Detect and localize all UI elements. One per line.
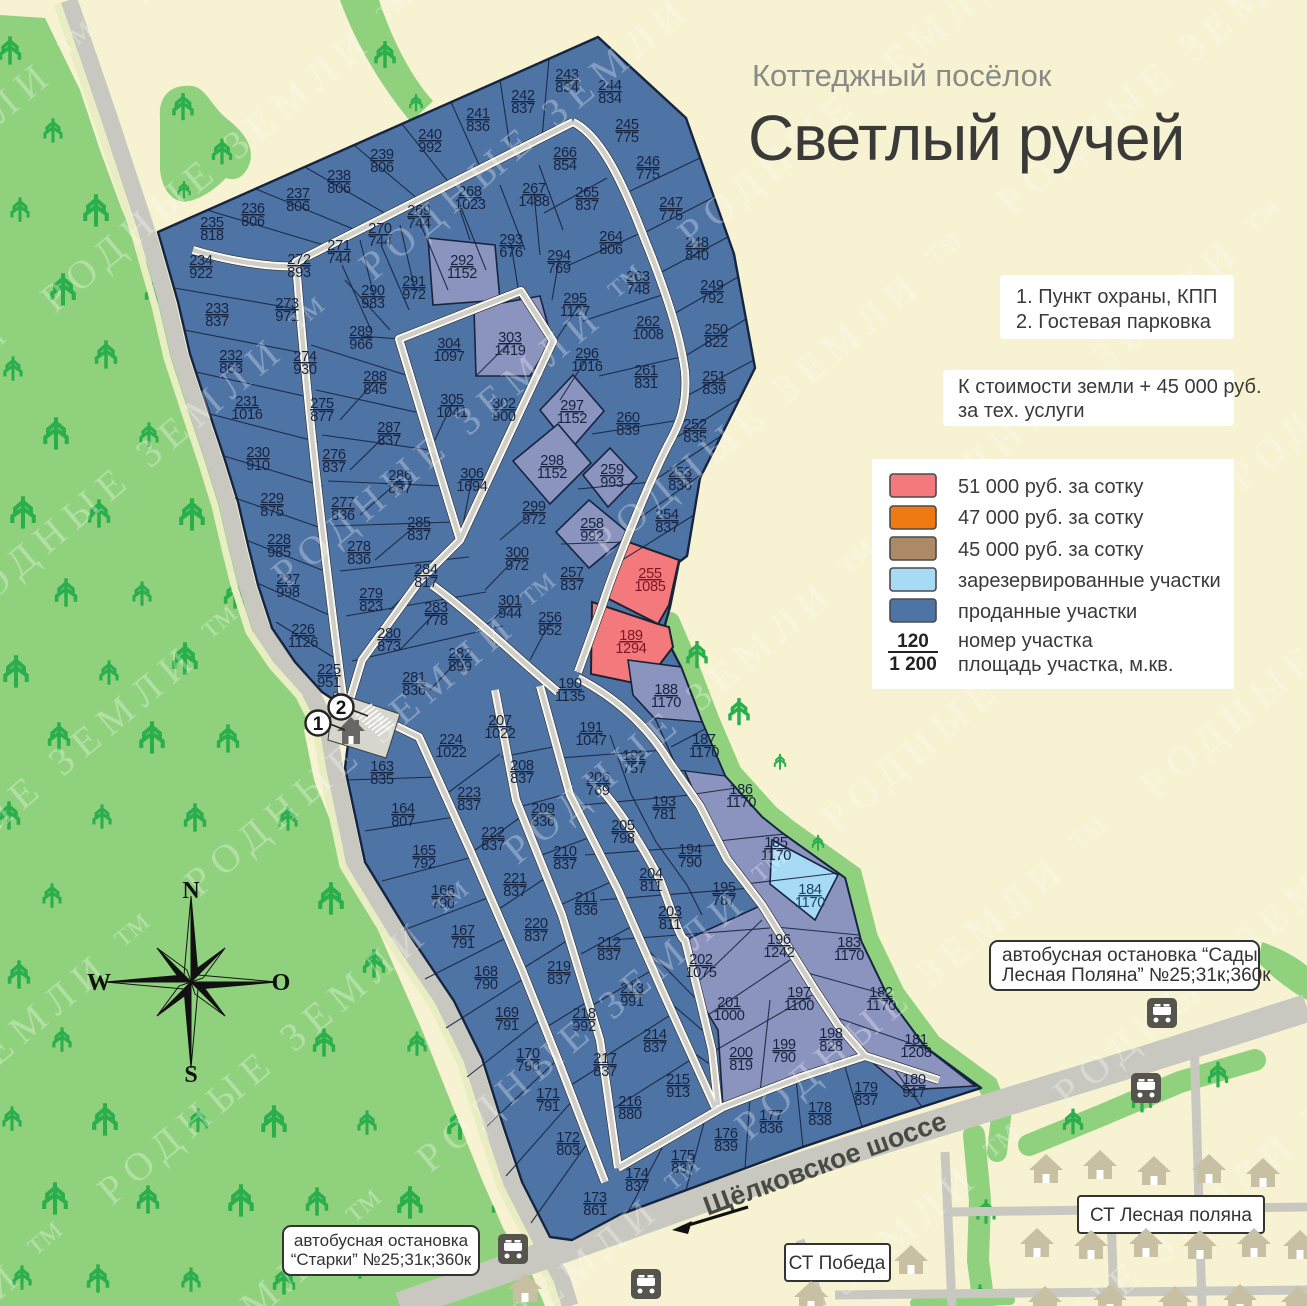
svg-text:972: 972 [402,287,426,303]
svg-text:837: 837 [457,798,481,814]
svg-text:910: 910 [246,458,270,474]
svg-text:1097: 1097 [433,349,464,365]
svg-text:1242: 1242 [763,945,794,961]
svg-text:номер участка: номер участка [958,630,1094,652]
svg-text:839: 839 [714,1139,738,1155]
svg-text:1170: 1170 [834,948,864,964]
svg-text:Коттеджный посёлок: Коттеджный посёлок [752,58,1052,93]
svg-text:769: 769 [547,261,571,277]
svg-text:837: 837 [854,1093,878,1109]
svg-text:798: 798 [611,831,635,847]
svg-text:площадь участка, м.кв.: площадь участка, м.кв. [958,654,1173,676]
svg-text:817: 817 [414,575,438,591]
svg-text:за тех. услуги: за тех. услуги [958,400,1085,422]
svg-text:837: 837 [575,198,599,214]
svg-text:835: 835 [370,772,394,788]
svg-text:819: 819 [729,1058,753,1074]
svg-text:1022: 1022 [435,745,466,761]
svg-text:792: 792 [412,856,436,872]
svg-text:51 000 руб. за сотку: 51 000 руб. за сотку [958,476,1143,498]
svg-text:837: 837 [510,771,534,787]
svg-text:873: 873 [377,639,401,655]
svg-text:807: 807 [391,814,415,830]
svg-text:930: 930 [293,362,317,378]
svg-text:790: 790 [474,977,498,993]
svg-text:983: 983 [361,296,385,312]
svg-text:837: 837 [597,948,621,964]
svg-text:822: 822 [704,335,728,351]
svg-text:837: 837 [322,460,346,476]
svg-text:744: 744 [327,251,351,267]
svg-text:1016: 1016 [571,359,602,375]
svg-text:811: 811 [640,879,663,895]
svg-text:1208: 1208 [900,1045,931,1061]
svg-text:1085: 1085 [634,579,665,595]
svg-text:1. Пункт охраны, КПП: 1. Пункт охраны, КПП [1016,286,1217,308]
svg-text:791: 791 [536,1099,560,1115]
svg-text:Лесная Поляна” №25;31к;360к: Лесная Поляна” №25;31к;360к [1002,965,1271,986]
svg-text:913: 913 [666,1085,690,1101]
svg-text:775: 775 [615,130,639,146]
svg-text:806: 806 [286,199,310,215]
svg-text:792: 792 [700,291,724,307]
svg-text:1152: 1152 [557,411,587,427]
svg-text:837: 837 [553,857,577,873]
svg-text:45 000 руб. за сотку: 45 000 руб. за сотку [958,539,1143,561]
svg-text:N: N [182,878,200,904]
svg-text:2: 2 [336,698,347,719]
svg-text:852: 852 [538,623,562,639]
svg-text:823: 823 [359,599,383,615]
svg-text:893: 893 [287,265,311,281]
svg-text:“Старки” №25;31к;360к: “Старки” №25;31к;360к [291,1250,472,1269]
svg-text:838: 838 [808,1113,832,1129]
svg-text:839: 839 [702,382,726,398]
svg-text:1016: 1016 [231,407,262,423]
svg-text:автобусная остановка “Сады: автобусная остановка “Сады [1002,945,1258,966]
svg-text:972: 972 [505,558,529,574]
svg-text:775: 775 [636,167,660,183]
svg-text:837: 837 [643,1040,667,1056]
svg-text:845: 845 [363,382,387,398]
svg-text:790: 790 [678,855,702,871]
svg-text:1 200: 1 200 [889,654,937,675]
svg-text:1488: 1488 [518,194,549,210]
svg-text:S: S [184,1062,197,1088]
svg-text:993: 993 [600,475,624,491]
svg-text:1694: 1694 [456,479,487,495]
svg-text:877: 877 [310,409,334,425]
svg-text:1000: 1000 [713,1008,744,1024]
svg-text:837: 837 [407,528,431,544]
svg-text:839: 839 [616,423,640,439]
svg-text:837: 837 [205,314,229,330]
svg-text:806: 806 [599,242,623,258]
svg-text:917: 917 [902,1085,926,1101]
svg-text:992: 992 [418,140,442,156]
svg-text:1170: 1170 [726,795,756,811]
svg-text:791: 791 [495,1018,519,1034]
svg-text:880: 880 [618,1107,642,1123]
svg-text:1126: 1126 [288,635,318,651]
svg-text:СТ Победа: СТ Победа [789,1253,886,1274]
svg-text:951: 951 [317,675,341,691]
svg-text:803: 803 [556,1143,580,1159]
svg-text:875: 875 [260,504,284,520]
svg-text:1022: 1022 [484,726,515,742]
svg-text:837: 837 [524,929,548,945]
svg-text:837: 837 [593,1064,617,1080]
svg-text:W: W [87,970,111,996]
svg-text:836: 836 [466,119,490,135]
svg-text:1170: 1170 [689,745,719,761]
svg-text:1100: 1100 [784,998,814,1014]
svg-text:837: 837 [547,972,571,988]
svg-text:806: 806 [370,160,394,176]
svg-text:СТ Лесная поляна: СТ Лесная поляна [1090,1205,1252,1226]
svg-text:922: 922 [189,266,213,282]
svg-text:проданные участки: проданные участки [958,601,1137,623]
svg-text:818: 818 [200,228,224,244]
svg-text:зарезервированные участки: зарезервированные участки [958,570,1221,592]
svg-text:831: 831 [634,376,658,392]
svg-text:1135: 1135 [555,689,585,705]
svg-text:806: 806 [327,181,351,197]
svg-text:1152: 1152 [447,266,477,282]
svg-text:836: 836 [574,903,598,919]
svg-text:837: 837 [503,884,527,900]
svg-text:1152: 1152 [537,466,567,482]
svg-text:2. Гостевая парковка: 2. Гостевая парковка [1016,311,1212,333]
svg-text:781: 781 [652,807,676,823]
svg-text:836: 836 [347,552,371,568]
svg-text:972: 972 [522,512,546,528]
svg-text:1: 1 [313,714,324,735]
svg-text:1170: 1170 [795,895,825,911]
svg-text:Светлый ручей: Светлый ручей [748,102,1184,174]
svg-text:778: 778 [424,613,448,629]
svg-text:120: 120 [897,631,929,652]
svg-text:837: 837 [377,433,401,449]
svg-text:1294: 1294 [615,641,646,657]
svg-text:791: 791 [451,936,475,952]
svg-text:К стоимости земли + 45 000 руб: К стоимости земли + 45 000 руб. [958,376,1262,398]
svg-text:O: O [272,970,291,996]
svg-text:806: 806 [241,214,265,230]
svg-text:854: 854 [553,158,577,174]
svg-text:автобусная остановка: автобусная остановка [294,1231,469,1250]
svg-text:1008: 1008 [632,327,663,343]
svg-text:676: 676 [499,245,523,261]
svg-text:47 000 руб. за сотку: 47 000 руб. за сотку [958,507,1143,529]
svg-text:966: 966 [349,337,373,353]
